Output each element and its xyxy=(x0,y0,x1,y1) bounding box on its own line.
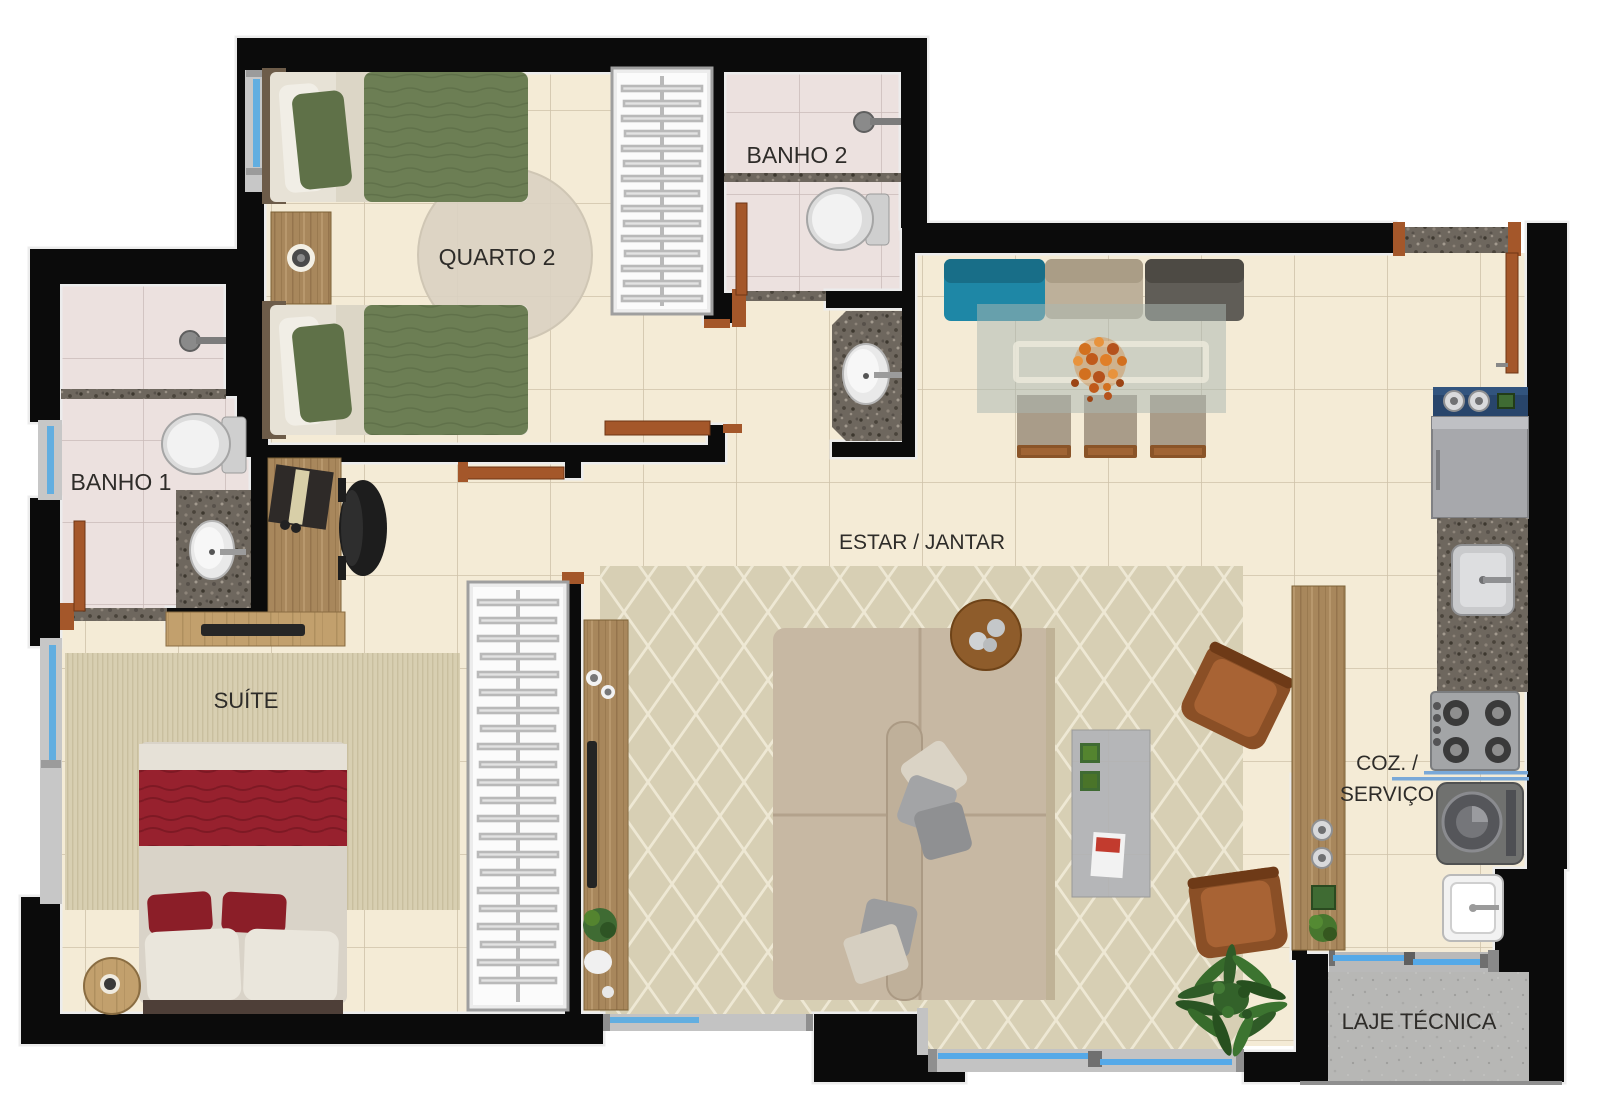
svg-text:LAJE TÉCNICA: LAJE TÉCNICA xyxy=(1342,1009,1497,1034)
svg-text:QUARTO 2: QUARTO 2 xyxy=(439,244,556,270)
svg-text:COZ. /: COZ. / xyxy=(1356,752,1418,775)
svg-text:SUÍTE: SUÍTE xyxy=(214,688,279,713)
svg-text:BANHO 2: BANHO 2 xyxy=(747,142,848,168)
svg-text:BANHO 1: BANHO 1 xyxy=(71,469,172,495)
svg-text:ESTAR / JANTAR: ESTAR / JANTAR xyxy=(839,531,1005,554)
svg-text:SERVIÇO: SERVIÇO xyxy=(1340,783,1434,806)
